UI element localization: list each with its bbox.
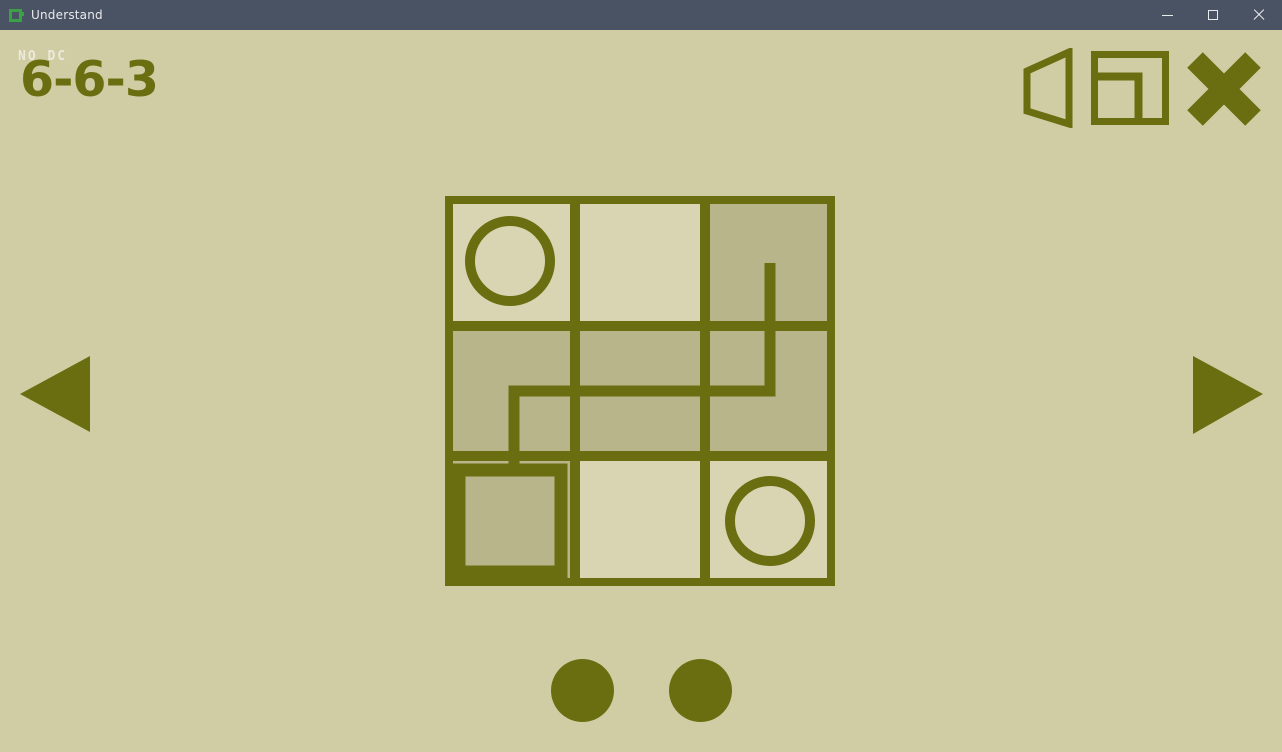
toolbar — [1022, 48, 1262, 128]
minimize-button[interactable] — [1144, 0, 1190, 30]
window-mode-icon[interactable] — [1090, 50, 1170, 126]
titlebar: Understand — [0, 0, 1282, 30]
level-label: 6-6-3 — [20, 55, 158, 104]
speaker-icon[interactable] — [1022, 48, 1074, 128]
window-controls — [1144, 0, 1282, 30]
puzzle-grid[interactable] — [445, 196, 835, 586]
close-button[interactable] — [1236, 0, 1282, 30]
game-stage: NO DC 6-6-3 — [0, 30, 1282, 752]
close-icon — [1253, 9, 1265, 21]
progress-dot[interactable] — [551, 659, 614, 722]
exit-cross-icon[interactable] — [1186, 49, 1262, 127]
progress-dot[interactable] — [669, 659, 732, 722]
window-title: Understand — [31, 8, 103, 22]
prev-arrow-button[interactable] — [16, 352, 94, 438]
app-logo-icon — [9, 9, 22, 22]
app-window: Understand NO DC 6-6-3 — [0, 0, 1282, 752]
maximize-icon — [1208, 10, 1218, 20]
maximize-button[interactable] — [1190, 0, 1236, 30]
progress-dots — [551, 659, 732, 722]
next-arrow-button[interactable] — [1189, 352, 1267, 438]
minimize-icon — [1162, 15, 1173, 16]
